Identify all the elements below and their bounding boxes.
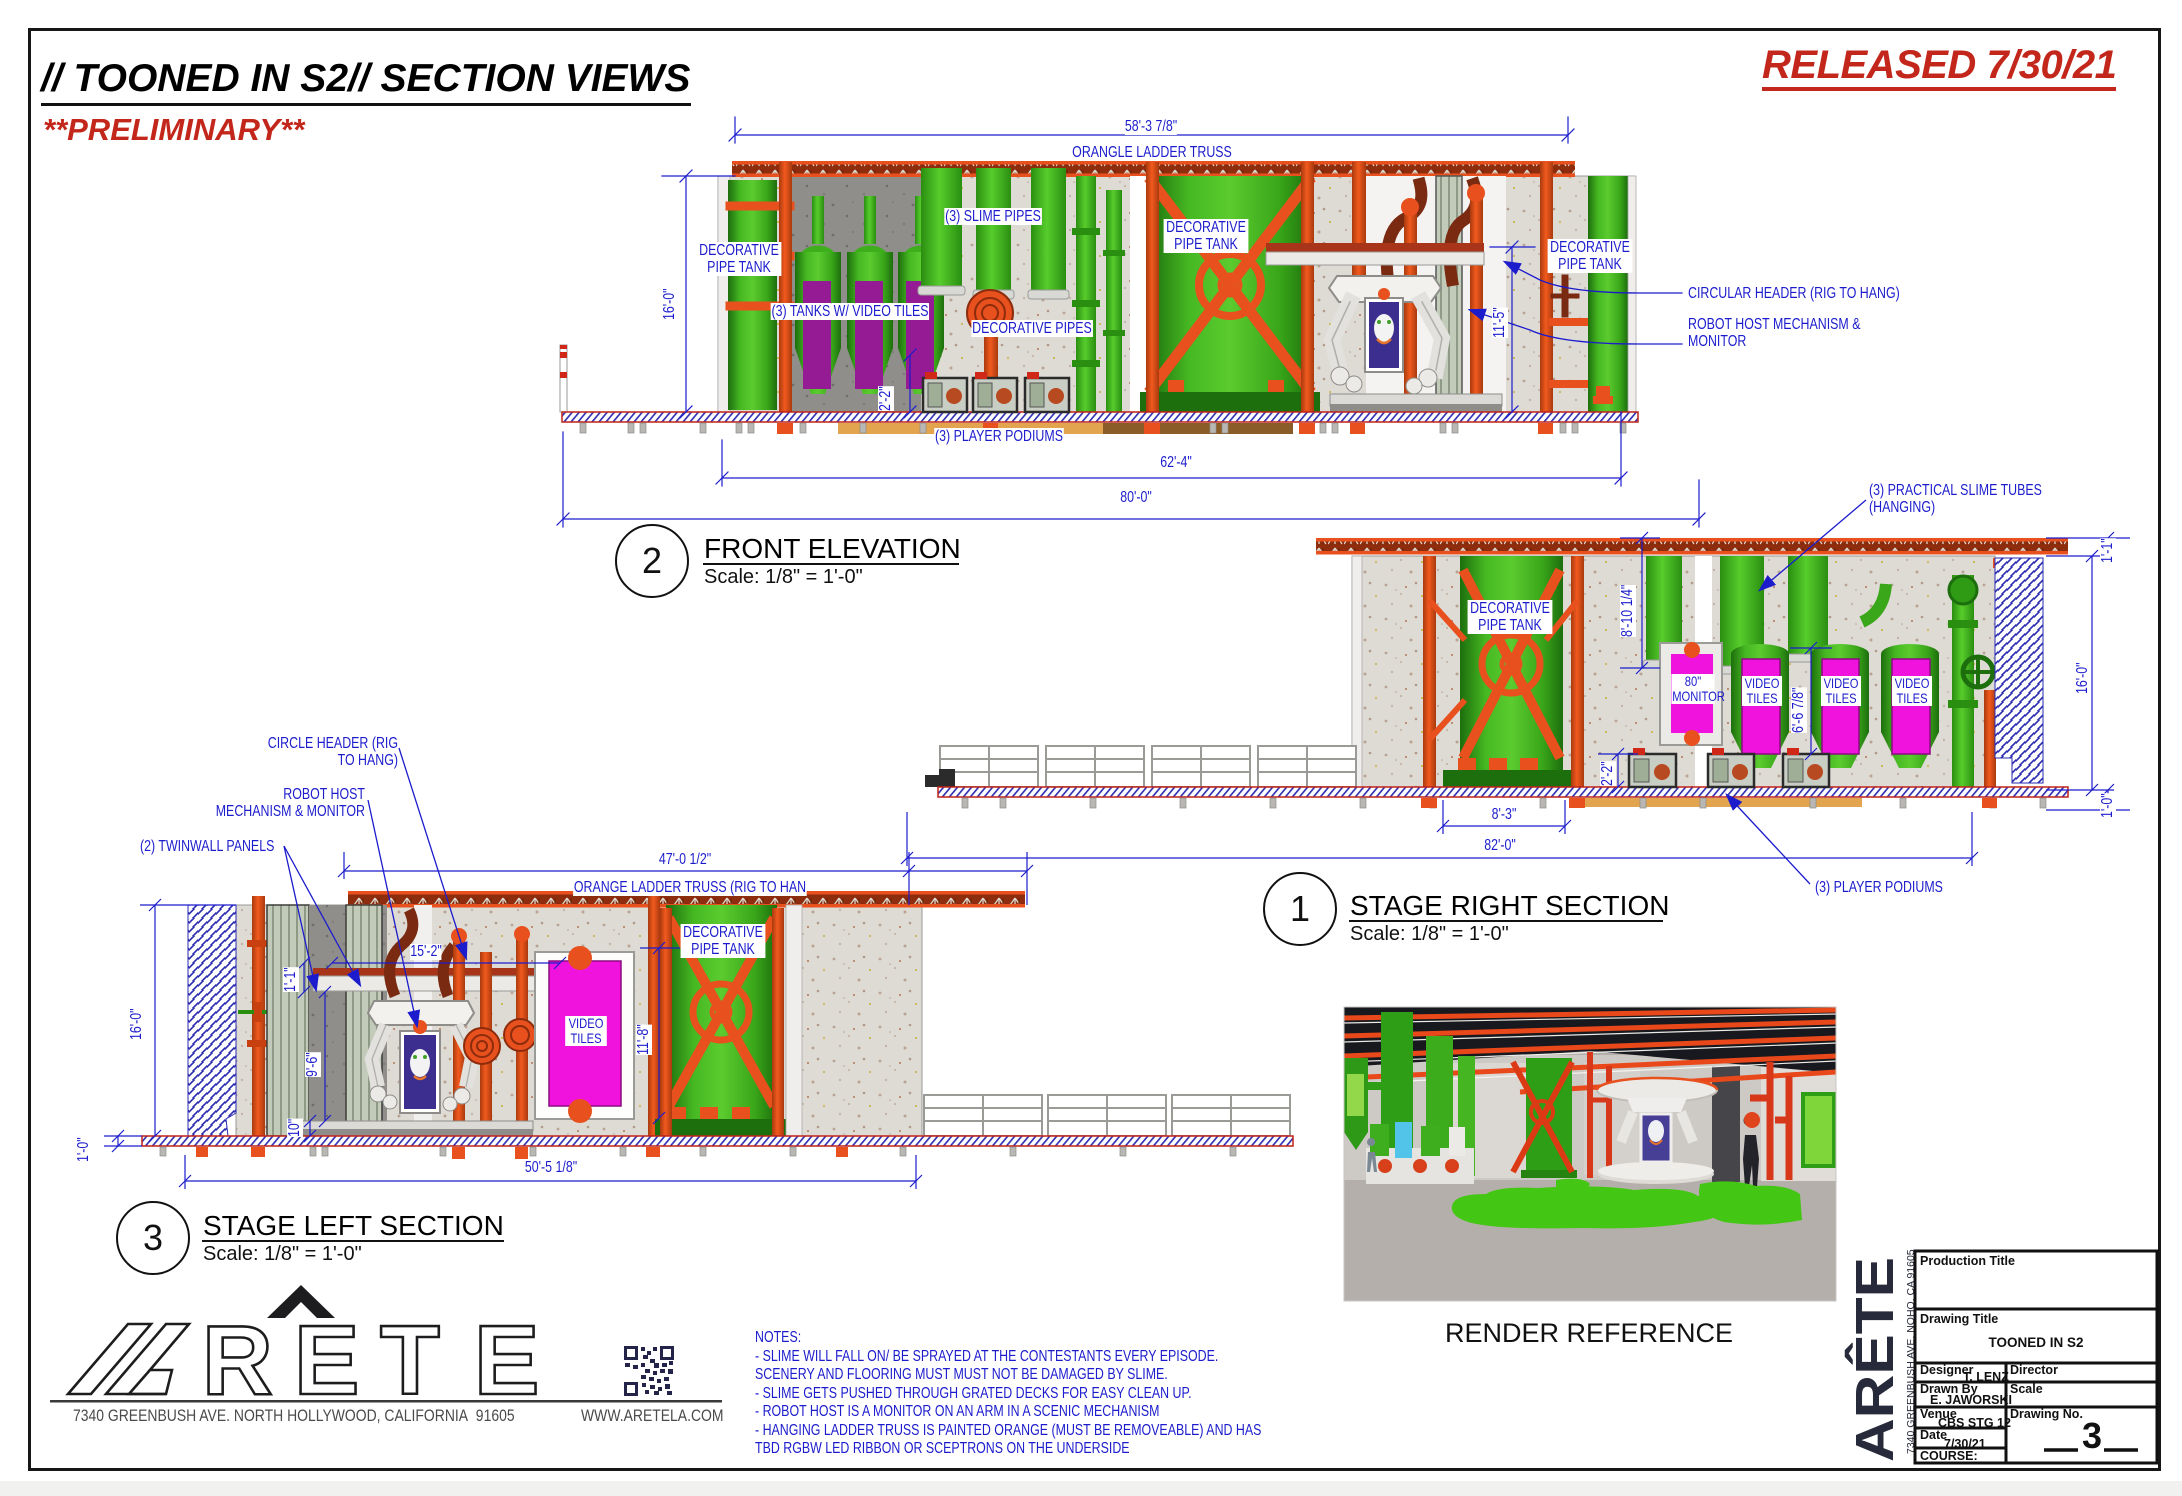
svg-text:ARÊTE: ARÊTE: [1844, 1257, 1905, 1462]
svg-text:CBS STG 12: CBS STG 12: [1938, 1416, 2011, 1430]
svg-text:TOONED IN S2: TOONED IN S2: [1988, 1335, 2083, 1350]
svg-text:E: E: [474, 1305, 539, 1415]
svg-text:Production Title: Production Title: [1920, 1254, 2015, 1268]
svg-text:Scale: Scale: [2010, 1382, 2043, 1396]
svg-text:Director: Director: [2010, 1363, 2058, 1377]
svg-text:E. JAWORSKI: E. JAWORSKI: [1930, 1393, 2012, 1407]
svg-text:T: T: [380, 1305, 440, 1415]
svg-text:3: 3: [2082, 1415, 2102, 1456]
svg-text:R: R: [202, 1305, 273, 1415]
svg-text:Drawing Title: Drawing Title: [1920, 1312, 1998, 1326]
svg-text:COURSE:: COURSE:: [1920, 1449, 1978, 1463]
svg-text:Drawing No.: Drawing No.: [2010, 1407, 2083, 1421]
svg-text:E: E: [294, 1305, 359, 1415]
